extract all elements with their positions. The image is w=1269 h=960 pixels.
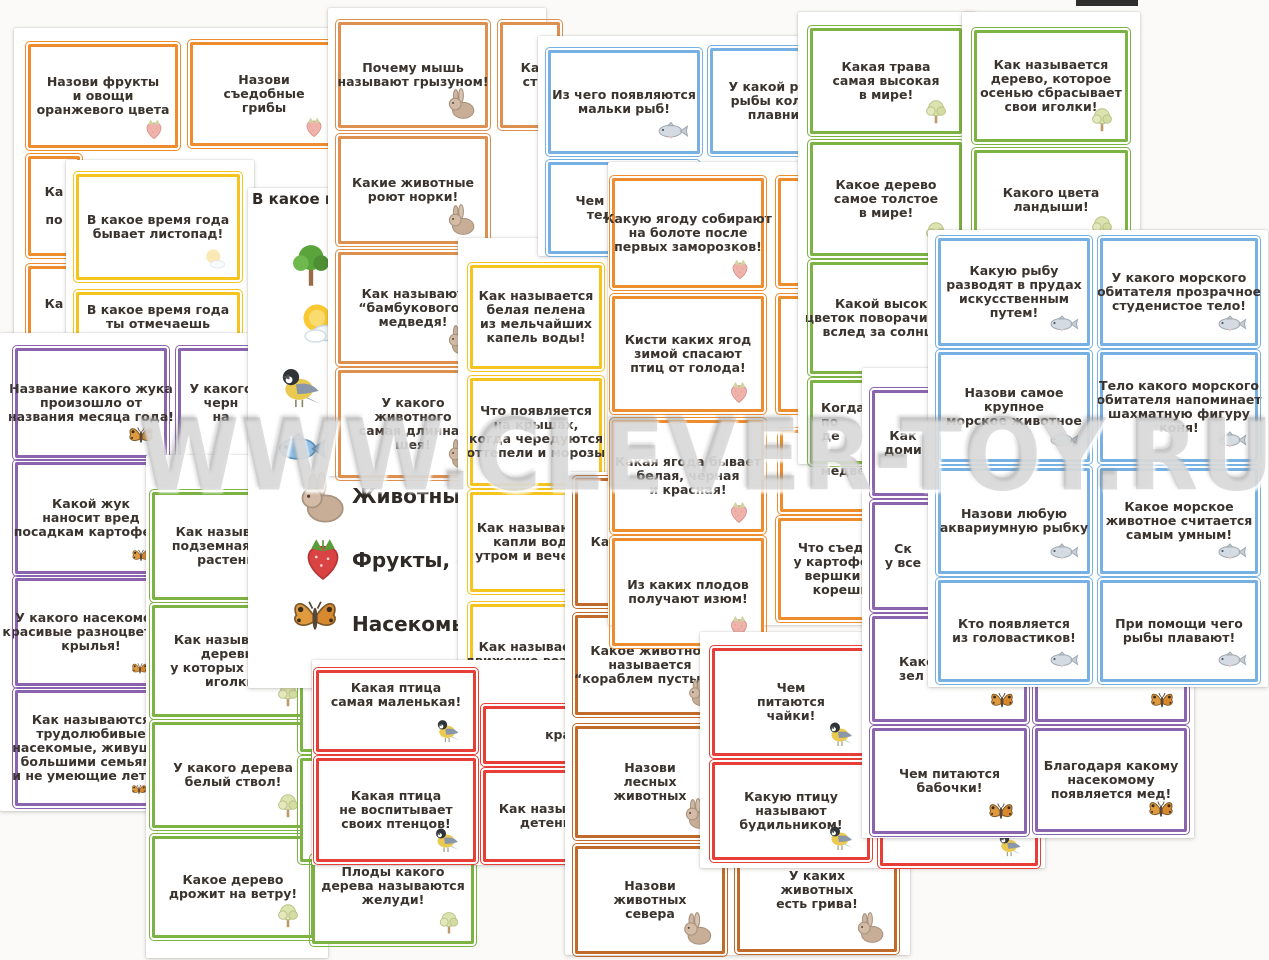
question-card: У какого деревабелый ствол! xyxy=(152,722,314,828)
card-text-line: медведя! xyxy=(378,315,447,329)
bird-icon xyxy=(433,823,465,855)
question-card: Какое дереводрожит на ветру! xyxy=(152,836,314,938)
card-text-line: дерево, которое xyxy=(991,72,1112,86)
card-text-line: Как называется xyxy=(479,289,594,303)
card-text-line: доми xyxy=(884,443,922,457)
question-card: Кисти каких ягодзимой спасаютптиц от гол… xyxy=(612,296,764,412)
card-text-line: Какая птица xyxy=(351,681,441,695)
strawberry-icon xyxy=(141,115,167,141)
fish-icon xyxy=(1215,535,1247,567)
question-card: Как называютсятрудолюбивыенасекомые, жив… xyxy=(15,690,167,806)
card-text-line: Как называется xyxy=(994,58,1109,72)
card-text-line: Какая ягода бывает xyxy=(615,455,761,469)
rabbit-icon xyxy=(443,203,477,237)
card-text-line: дерева называются xyxy=(321,879,465,893)
card-text-line: “бамбукового” xyxy=(358,301,467,315)
bird-icon xyxy=(827,821,859,853)
card-text-line: у все xyxy=(885,556,921,570)
question-card: Назовисъедобныегрибы xyxy=(190,42,338,146)
tree-icon xyxy=(273,901,303,931)
fish-icon xyxy=(1215,307,1247,339)
card-text-line: У каких xyxy=(789,869,845,883)
question-card: Чемпитаютсячайки! xyxy=(712,648,870,756)
card-text-line: ландыши! xyxy=(1013,200,1088,214)
strawberry-icon xyxy=(301,113,327,139)
card-text-line: большими семьями xyxy=(21,755,162,769)
card-text-line: Чем питаются xyxy=(899,767,1000,781)
card-text-line: де xyxy=(821,429,840,443)
rabbit-icon xyxy=(443,87,477,121)
tree-icon xyxy=(921,97,951,127)
question-card: Почему мышьназывают грызуном! xyxy=(338,22,488,128)
card-text-line: в мире! xyxy=(859,88,913,102)
card-text-line: дрожит на ветру! xyxy=(169,887,297,901)
strawberry-icon xyxy=(296,530,350,584)
question-card: При помощи чегорыбы плавают! xyxy=(1100,580,1258,682)
question-card: Какая птицасамая маленькая! xyxy=(316,670,476,752)
card-text-line: Ка xyxy=(45,185,64,199)
question-card: Чем питаютсябабочки! xyxy=(872,728,1027,834)
question-card: У какого морскогообитателя прозрачноесту… xyxy=(1100,238,1258,346)
card-text-line xyxy=(52,199,56,213)
sun-icon xyxy=(201,245,229,273)
question-card: Как называетсядерево, котороеосенью сбра… xyxy=(974,30,1128,142)
card-text-line: коня! xyxy=(1159,421,1198,435)
card-text-line: желуди! xyxy=(362,893,425,907)
card-text-line: Плоды какого xyxy=(341,865,444,879)
card-text-line: Какую ягоду собирают xyxy=(604,212,772,226)
card-text-line: птиц от голода! xyxy=(630,361,746,375)
question-card: Благодаря какомунасекомомупоявляется мед… xyxy=(1035,728,1187,832)
card-text-line: животных xyxy=(614,789,687,803)
card-text-line: есть грива! xyxy=(776,897,858,911)
question-card: Что появляетсяна крышах,когда чередуются… xyxy=(470,378,602,486)
bird-icon xyxy=(435,715,465,745)
card-text-line: При помощи чего xyxy=(1115,617,1243,631)
card-text-line: животных xyxy=(781,883,854,897)
card-text-line: Какая трава xyxy=(842,60,931,74)
card-text-line: Назови xyxy=(238,73,289,87)
card-text-line: Почему мышь xyxy=(362,61,464,75)
card-text-line: белая пелена xyxy=(487,303,586,317)
card-text-line: наносит вред xyxy=(42,511,140,525)
card-text-line: на крышах, xyxy=(494,418,579,432)
card-text-line: Какой жук xyxy=(52,497,130,511)
card-text-line: Какое дерево xyxy=(835,178,936,192)
card-text-line: Из чего появляются xyxy=(552,88,696,102)
card-text-line: Из каких плодов xyxy=(627,578,749,592)
butterfly-icon xyxy=(288,590,342,644)
card-text-line: получают изюм! xyxy=(628,592,747,606)
card-text-line: обитателя напоминает xyxy=(1096,393,1261,407)
card-text-line: Ка xyxy=(591,535,610,549)
card-text-line: в мире! xyxy=(859,206,913,220)
card-text-line: первых заморозков! xyxy=(614,240,762,254)
tree-icon xyxy=(273,791,303,821)
card-text-line: Как xyxy=(889,429,916,443)
card-text-line: ты отмечаешь xyxy=(106,317,210,331)
card-text-line: черн xyxy=(204,396,239,410)
card-text-line: зимой спасают xyxy=(634,347,742,361)
question-card: В какое время годабывает листопад! xyxy=(76,174,240,280)
butterfly-icon xyxy=(988,687,1016,715)
question-card: Назови самоекрупноеморское животное xyxy=(938,352,1090,462)
card-text-line: Какую рыбу xyxy=(970,264,1059,278)
question-card: Какую ягоду собираютна болоте послепервы… xyxy=(612,178,764,288)
card-text-line: грибы xyxy=(242,101,286,115)
rabbit-icon xyxy=(852,911,886,945)
card-text-line: по xyxy=(45,213,62,227)
fish-icon xyxy=(274,420,328,474)
card-text-line: севера xyxy=(625,907,675,921)
card-text-line: бывает листопад! xyxy=(93,227,223,241)
fish-icon xyxy=(1047,307,1079,339)
card-text-line: капель воды! xyxy=(486,331,585,345)
fish-icon xyxy=(655,113,689,147)
card-text-line: шея! xyxy=(395,438,430,452)
question-card: Кто появляетсяиз головастиков! xyxy=(938,580,1090,682)
card-text-line: шахматную фигуру xyxy=(1108,407,1250,421)
card-text-line: трудолюбивые xyxy=(36,727,146,741)
card-text-line: Какую птицу xyxy=(744,790,838,804)
question-card: Какие животныероют норки! xyxy=(338,136,488,244)
question-card: Название какого жукапроизошло отназвания… xyxy=(15,348,167,458)
fish-icon xyxy=(1047,535,1079,567)
question-card: Из чего появляютсямальки рыб! xyxy=(548,50,700,154)
card-text-line: Ка xyxy=(521,61,540,75)
question-card: Тело какого морскогообитателя напоминает… xyxy=(1100,352,1258,462)
card-text-line: У какого xyxy=(381,396,444,410)
bird-icon xyxy=(278,360,330,412)
card-text-line: свои иголки! xyxy=(1005,100,1098,114)
card-text-line: белая, черная xyxy=(636,469,739,483)
card-text-line: Что появляется xyxy=(480,404,592,418)
card-text-line: животного xyxy=(374,410,451,424)
butterfly-icon xyxy=(1148,687,1176,715)
card-text-line: и овощи xyxy=(73,89,134,103)
card-text-line: В какое время года xyxy=(87,213,229,227)
card-text-line: Какого цвета xyxy=(1003,186,1100,200)
card-text-line: на болоте после xyxy=(629,226,748,240)
tree-icon xyxy=(1087,105,1117,135)
card-text-line: называют xyxy=(755,804,826,818)
card-text-line: Название какого жука xyxy=(9,382,173,396)
question-card: У какого насекомогокрасивые разноцветные… xyxy=(15,578,167,686)
card-text-line: Тело какого морского xyxy=(1099,379,1259,393)
card-text-line: Какие животные xyxy=(352,176,474,190)
card-text-line: Какое дерево xyxy=(182,873,283,887)
card-text-line: Благодаря какому xyxy=(1044,759,1178,773)
card-text-line: Ка xyxy=(45,297,64,311)
card-text-line: животных xyxy=(614,893,687,907)
card-text-line: Какая птица xyxy=(351,789,441,803)
card-text-line: У какого морского xyxy=(1112,271,1247,285)
card-text-line: Назови любую xyxy=(961,507,1067,521)
card-text-line: Назови фрукты xyxy=(47,75,159,89)
card-text-line: В какое время года xyxy=(87,303,229,317)
question-card: Какой жукнаносит вредпосадкам картофеля xyxy=(15,462,167,574)
card-text-line: У какого xyxy=(189,382,252,396)
card-text-line: бабочки! xyxy=(916,781,982,795)
card-text-line: самая маленькая! xyxy=(331,695,461,709)
card-text-line: Кисти каких ягод xyxy=(625,333,752,347)
question-card: Ску все xyxy=(872,502,934,610)
question-card: Плоды какогодерева называютсяжелуди! xyxy=(312,856,474,944)
card-text-line: оттепели и морозы xyxy=(467,446,606,460)
question-card: Какая ягода бываетбелая, чернаяи красная… xyxy=(612,420,764,532)
card-text-line: когда чередуются xyxy=(469,432,603,446)
card-text-line: осенью сбрасывает xyxy=(980,86,1122,100)
strawberry-icon xyxy=(725,377,753,405)
card-text-line: называется xyxy=(608,658,691,672)
card-text-line: не воспитывает xyxy=(339,803,452,817)
card-text-line: животное считается xyxy=(1106,514,1253,528)
card-text-line: обитателя прозрачное xyxy=(1097,285,1261,299)
card-text-line: крылья! xyxy=(61,639,121,653)
card-text-line: У какого насекомого xyxy=(15,611,166,625)
card-text-line: чайки! xyxy=(767,709,816,723)
card-text-line: самая длинная xyxy=(359,424,468,438)
photo-canvas: WWW.CLEVER-TOY.RU Назови фруктыи овощиор… xyxy=(0,0,1269,960)
legend-label: Животные xyxy=(352,484,474,508)
card-text-line: белый ствол! xyxy=(185,775,282,789)
card-text-line: У какого дерева xyxy=(173,761,293,775)
rabbit-icon xyxy=(292,470,348,526)
card-text-line: Как называются xyxy=(32,713,150,727)
butterfly-icon xyxy=(126,421,156,451)
question-card: Какую рыбуразводят в прудахискусственным… xyxy=(938,238,1090,346)
card-text-line: лесных xyxy=(623,775,676,789)
card-text-line: Чем xyxy=(777,681,806,695)
card-text-line: Назови xyxy=(624,879,675,893)
question-card: Назови фруктыи овощиоранжевого цвета xyxy=(28,44,178,148)
card-text-line: зел xyxy=(899,669,924,683)
card-text-line: ст xyxy=(523,75,538,89)
card-text-line: съедобные xyxy=(223,87,304,101)
fish-icon xyxy=(1047,423,1079,455)
fish-icon xyxy=(1047,643,1079,675)
bird-icon xyxy=(827,717,859,749)
card-text-line: питаются xyxy=(757,695,825,709)
fish-icon xyxy=(1215,643,1247,675)
strawberry-icon xyxy=(727,255,753,281)
fish-icon xyxy=(1215,423,1247,455)
butterfly-icon xyxy=(986,797,1016,827)
card-text-line: на xyxy=(212,410,229,424)
card-text-line: путем! xyxy=(990,306,1038,320)
question-card: Какая птицане воспитываетсвоих птенцов! xyxy=(316,758,476,862)
card-text-line: искусственным xyxy=(959,292,1069,306)
question-card: Какдоми xyxy=(872,390,934,496)
card-text-line: крупное xyxy=(984,400,1044,414)
card-text-line: Как называют xyxy=(362,287,465,301)
question-card: Как называетсябелая пеленаиз мельчайшихк… xyxy=(470,265,602,369)
butterfly-icon xyxy=(1146,795,1176,825)
tree-icon xyxy=(435,909,463,937)
card-text-line: Какое морское xyxy=(1124,500,1233,514)
card-text-line: аквариумную рыбку xyxy=(940,521,1088,535)
card-text-line: по xyxy=(821,415,838,429)
card-text-line: произошло от xyxy=(40,396,142,410)
question-card: Какая травасамая высокаяв мире! xyxy=(810,28,962,134)
question-card: Какую птицуназываютбудильником! xyxy=(712,762,870,860)
card-text-line: из мельчайших xyxy=(480,317,592,331)
question-card: Какое морскоеживотное считаетсясамым умн… xyxy=(1100,468,1258,574)
card-text-line: самая высокая xyxy=(832,74,939,88)
card-text-line: Кто появляется xyxy=(958,617,1070,631)
card-text-line: Назови xyxy=(624,761,675,775)
card-text-line: роют норки! xyxy=(368,190,458,204)
card-text-line: разводят в прудах xyxy=(946,278,1081,292)
card-text-line: насекомому xyxy=(1067,773,1154,787)
cropped-edge-artifact xyxy=(1076,0,1138,6)
question-card: Из каких плодовполучают изюм! xyxy=(612,538,764,646)
card-text-line: Ск xyxy=(894,542,912,556)
strawberry-icon xyxy=(725,497,753,525)
card-text-line: и красная! xyxy=(649,483,726,497)
card-text-line: Назови самое xyxy=(965,386,1064,400)
rabbit-icon xyxy=(678,911,714,947)
card-text-line: самое толстое xyxy=(834,192,938,206)
question-card: Назови любуюаквариумную рыбку xyxy=(938,468,1090,574)
